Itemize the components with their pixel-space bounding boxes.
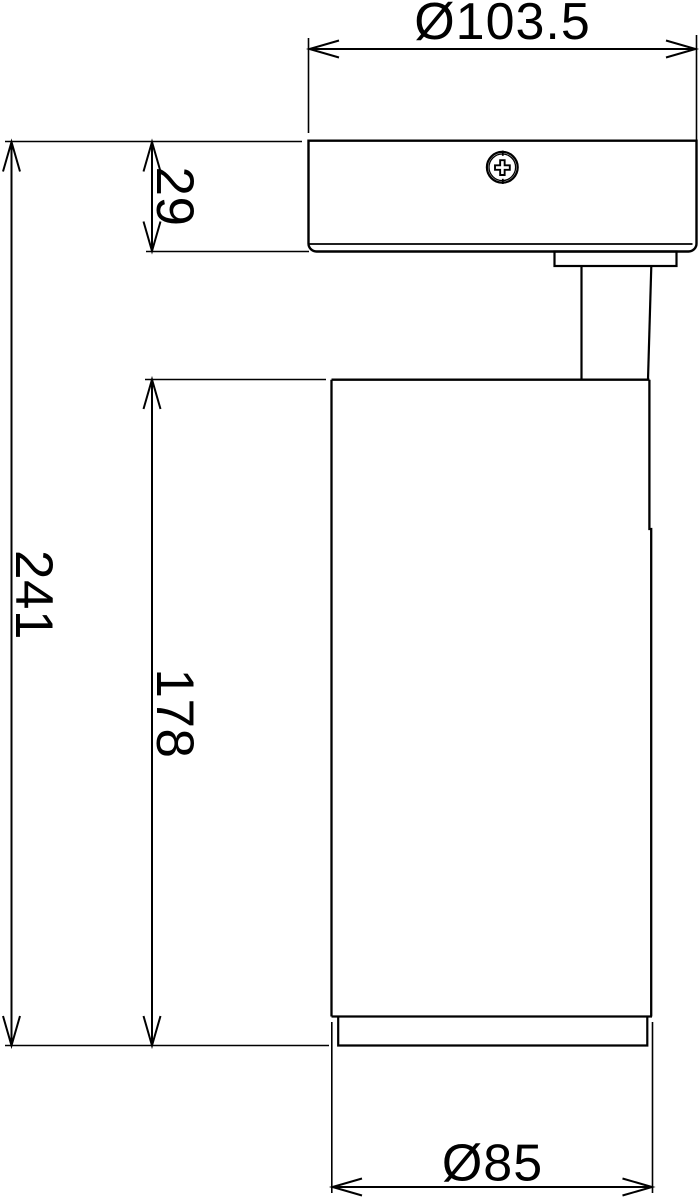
svg-text:Ø103.5: Ø103.5 — [414, 0, 591, 51]
svg-text:29: 29 — [145, 167, 204, 227]
svg-text:178: 178 — [145, 669, 204, 759]
svg-text:Ø85: Ø85 — [442, 1135, 543, 1193]
svg-text:241: 241 — [4, 550, 63, 640]
